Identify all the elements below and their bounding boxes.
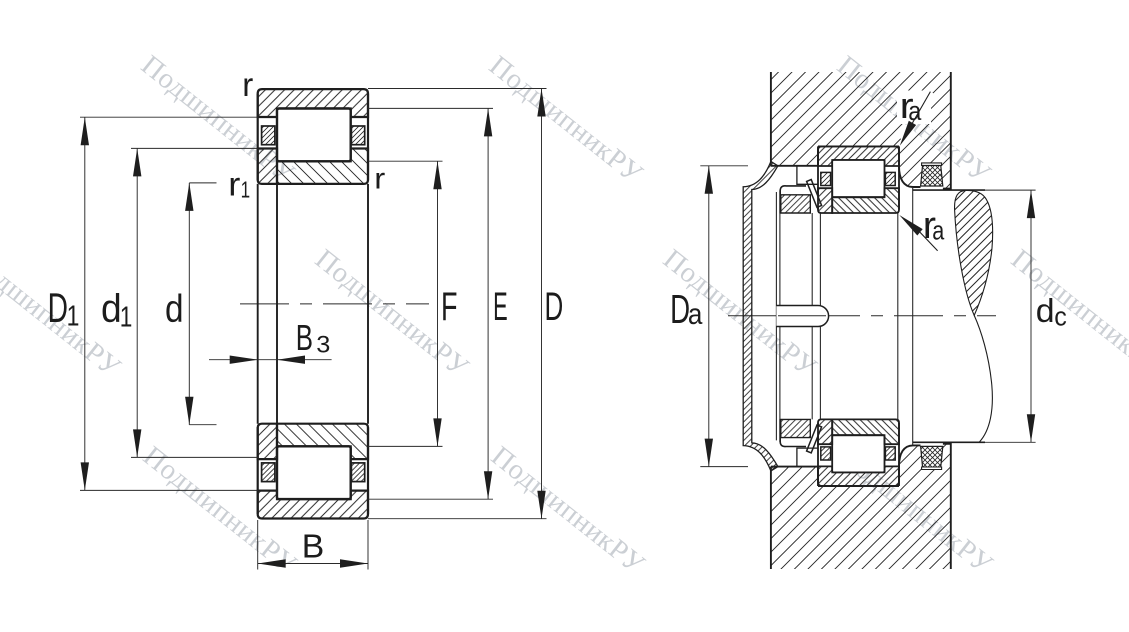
svg-text:a: a: [688, 297, 703, 330]
svg-text:d: d: [1036, 293, 1055, 330]
svg-text:D: D: [545, 284, 564, 329]
svg-text:d: d: [165, 286, 184, 330]
svg-text:r: r: [228, 167, 240, 203]
svg-text:3: 3: [316, 332, 330, 358]
svg-text:B: B: [302, 527, 324, 565]
svg-text:d: d: [101, 287, 122, 332]
svg-text:r: r: [374, 161, 385, 195]
svg-text:a: a: [932, 216, 944, 246]
svg-text:ПодшипникРУ: ПодшипникРУ: [483, 50, 648, 190]
svg-text:r: r: [242, 66, 253, 103]
svg-text:ПодшипникРУ: ПодшипникРУ: [485, 441, 650, 581]
svg-text:c: c: [1054, 301, 1067, 332]
svg-text:1: 1: [67, 299, 80, 332]
svg-text:E: E: [493, 284, 508, 329]
svg-text:D: D: [48, 284, 68, 331]
svg-text:B: B: [296, 316, 313, 358]
svg-text:ПодшипникРУ: ПодшипникРУ: [1005, 244, 1129, 384]
svg-text:1: 1: [241, 177, 250, 203]
svg-text:1: 1: [120, 300, 133, 333]
svg-text:F: F: [441, 285, 457, 330]
svg-text:a: a: [908, 96, 922, 126]
